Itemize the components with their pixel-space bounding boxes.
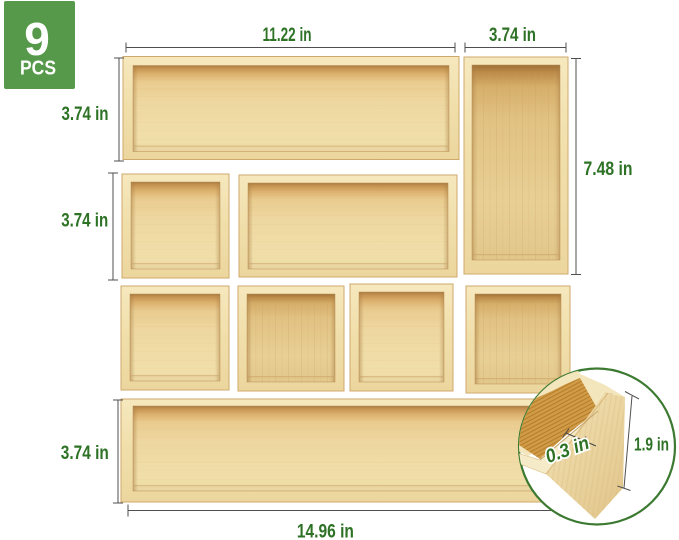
svg-text:3.74 in: 3.74 in xyxy=(61,443,109,464)
svg-text:3.74 in: 3.74 in xyxy=(489,25,536,46)
svg-text:11.22 in: 11.22 in xyxy=(263,25,312,46)
svg-text:3.74 in: 3.74 in xyxy=(61,211,108,232)
svg-text:3.74 in: 3.74 in xyxy=(62,104,109,125)
svg-text:PCS: PCS xyxy=(20,58,56,80)
svg-text:7.48 in: 7.48 in xyxy=(584,159,633,180)
svg-text:1.9 in: 1.9 in xyxy=(634,435,669,455)
svg-text:14.96 in: 14.96 in xyxy=(297,522,354,540)
